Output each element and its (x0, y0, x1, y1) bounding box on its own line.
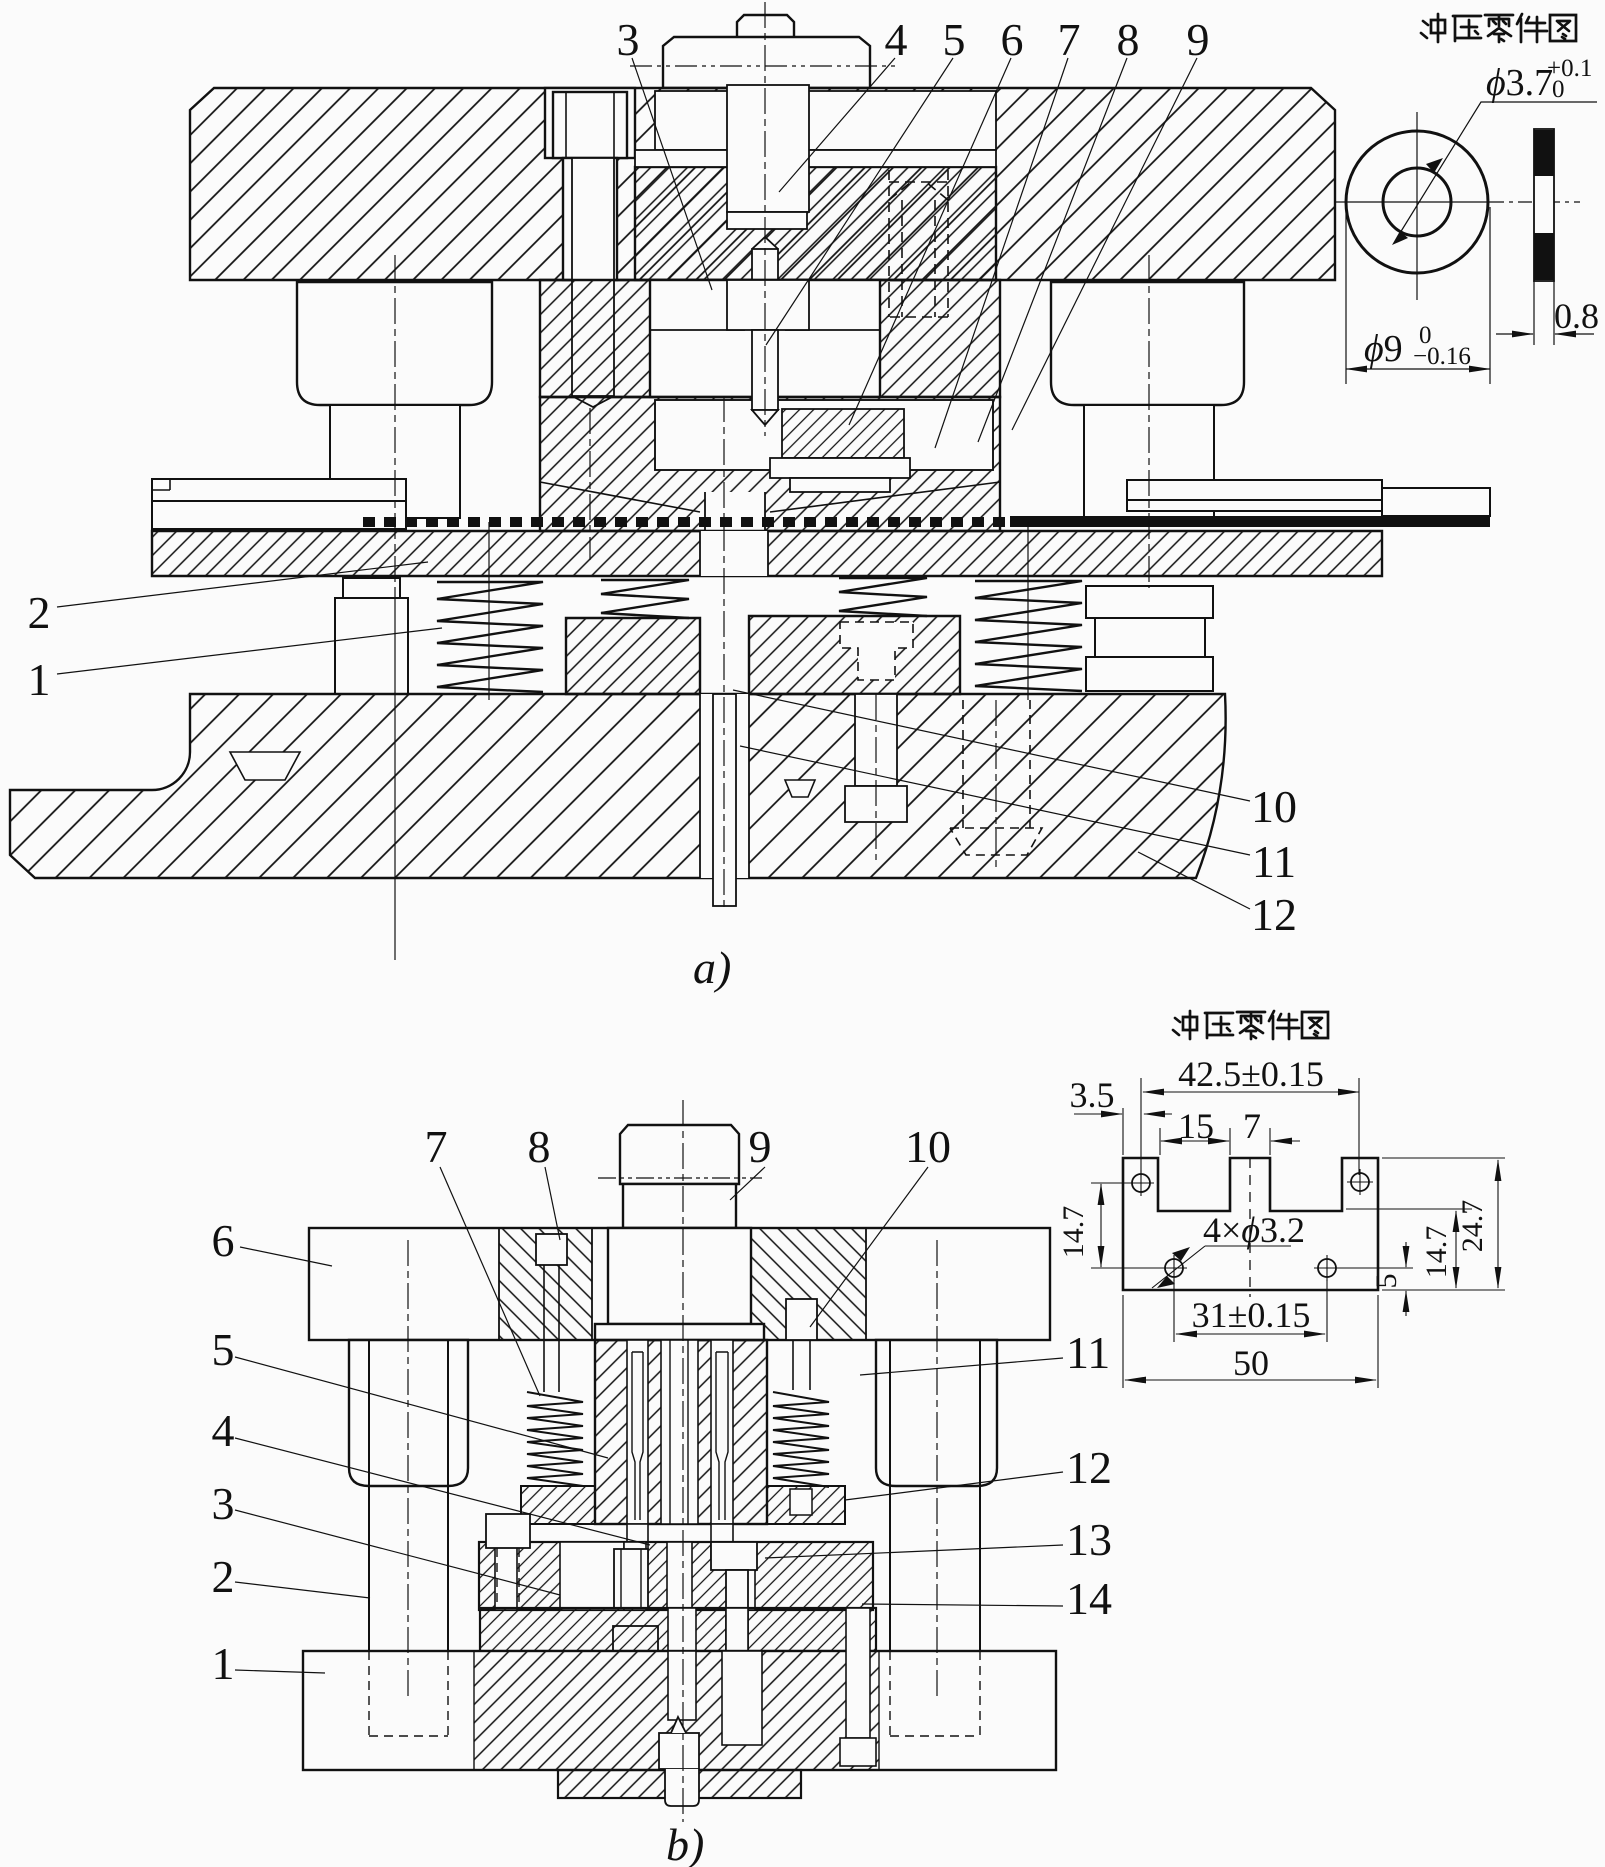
svg-text:31±0.15: 31±0.15 (1192, 1295, 1311, 1335)
svg-text:0: 0 (1552, 76, 1565, 103)
svg-text:b): b) (666, 1819, 704, 1867)
svg-text:10: 10 (1251, 781, 1297, 832)
svg-text:3.5: 3.5 (1070, 1075, 1115, 1115)
svg-text:4×ϕ3.2: 4×ϕ3.2 (1203, 1210, 1305, 1250)
svg-text:3: 3 (617, 14, 640, 65)
svg-text:14: 14 (1066, 1573, 1112, 1624)
svg-text:4: 4 (885, 14, 908, 65)
svg-text:5: 5 (943, 14, 966, 65)
svg-text:9: 9 (749, 1121, 772, 1172)
svg-text:6: 6 (1001, 14, 1024, 65)
svg-text:8: 8 (528, 1121, 551, 1172)
svg-text:5: 5 (212, 1324, 235, 1375)
svg-text:7: 7 (1058, 14, 1081, 65)
svg-text:1: 1 (28, 654, 51, 705)
svg-text:12: 12 (1251, 889, 1297, 940)
svg-text:3: 3 (212, 1478, 235, 1529)
svg-text:12: 12 (1066, 1442, 1112, 1493)
svg-text:14.7: 14.7 (1057, 1206, 1090, 1259)
svg-text:ϕ3.7: ϕ3.7 (1486, 62, 1553, 104)
svg-text:5: 5 (1370, 1274, 1403, 1289)
svg-text:10: 10 (905, 1121, 951, 1172)
svg-text:42.5±0.15: 42.5±0.15 (1178, 1054, 1324, 1094)
svg-text:1: 1 (212, 1638, 235, 1689)
svg-text:−0.16: −0.16 (1413, 343, 1471, 370)
svg-text:a): a) (693, 942, 731, 993)
svg-text:7: 7 (1243, 1106, 1261, 1146)
svg-text:14.7: 14.7 (1420, 1226, 1453, 1279)
svg-text:8: 8 (1117, 14, 1140, 65)
svg-text:13: 13 (1066, 1514, 1112, 1565)
svg-text:4: 4 (212, 1405, 235, 1456)
svg-text:50: 50 (1233, 1343, 1269, 1383)
svg-text:2: 2 (28, 587, 51, 638)
svg-text:0.8: 0.8 (1554, 296, 1599, 336)
svg-text:15: 15 (1178, 1106, 1214, 1146)
svg-text:6: 6 (212, 1215, 235, 1266)
svg-text:2: 2 (212, 1551, 235, 1602)
svg-text:9: 9 (1187, 14, 1210, 65)
svg-text:ϕ9: ϕ9 (1364, 328, 1403, 370)
svg-text:11: 11 (1066, 1327, 1110, 1378)
svg-text:11: 11 (1252, 836, 1296, 887)
svg-text:7: 7 (425, 1121, 448, 1172)
svg-text:24.7: 24.7 (1456, 1200, 1489, 1253)
